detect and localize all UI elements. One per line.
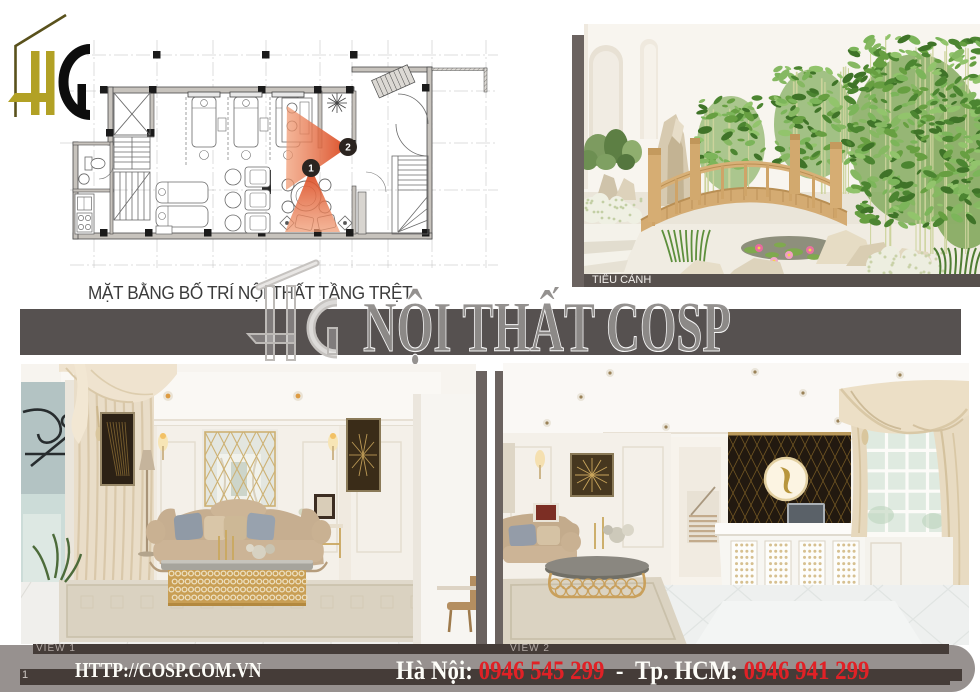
svg-text:1: 1: [308, 164, 314, 175]
svg-text:NỘI THẤT COSP: NỘI THẤT COSP: [363, 286, 731, 367]
svg-text:2: 2: [345, 143, 351, 154]
